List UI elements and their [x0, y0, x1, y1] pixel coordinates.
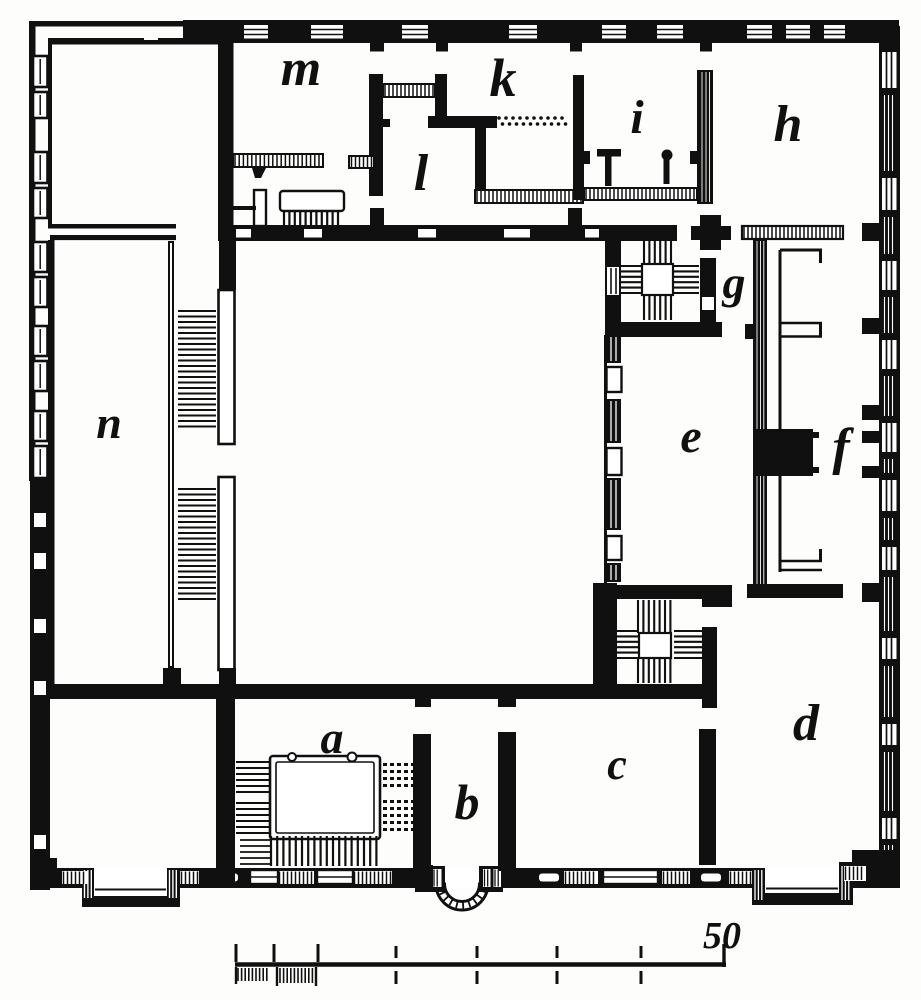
svg-text:g: g	[722, 257, 746, 308]
svg-text:d: d	[793, 695, 820, 752]
svg-text:b: b	[455, 774, 480, 830]
svg-text:h: h	[774, 96, 803, 153]
svg-text:i: i	[630, 91, 644, 144]
svg-text:k: k	[490, 48, 517, 108]
svg-text:c: c	[607, 740, 627, 789]
svg-text:50: 50	[703, 915, 741, 957]
svg-text:m: m	[281, 40, 321, 97]
svg-text:l: l	[414, 145, 429, 202]
svg-text:n: n	[96, 397, 122, 448]
svg-text:e: e	[680, 410, 701, 463]
